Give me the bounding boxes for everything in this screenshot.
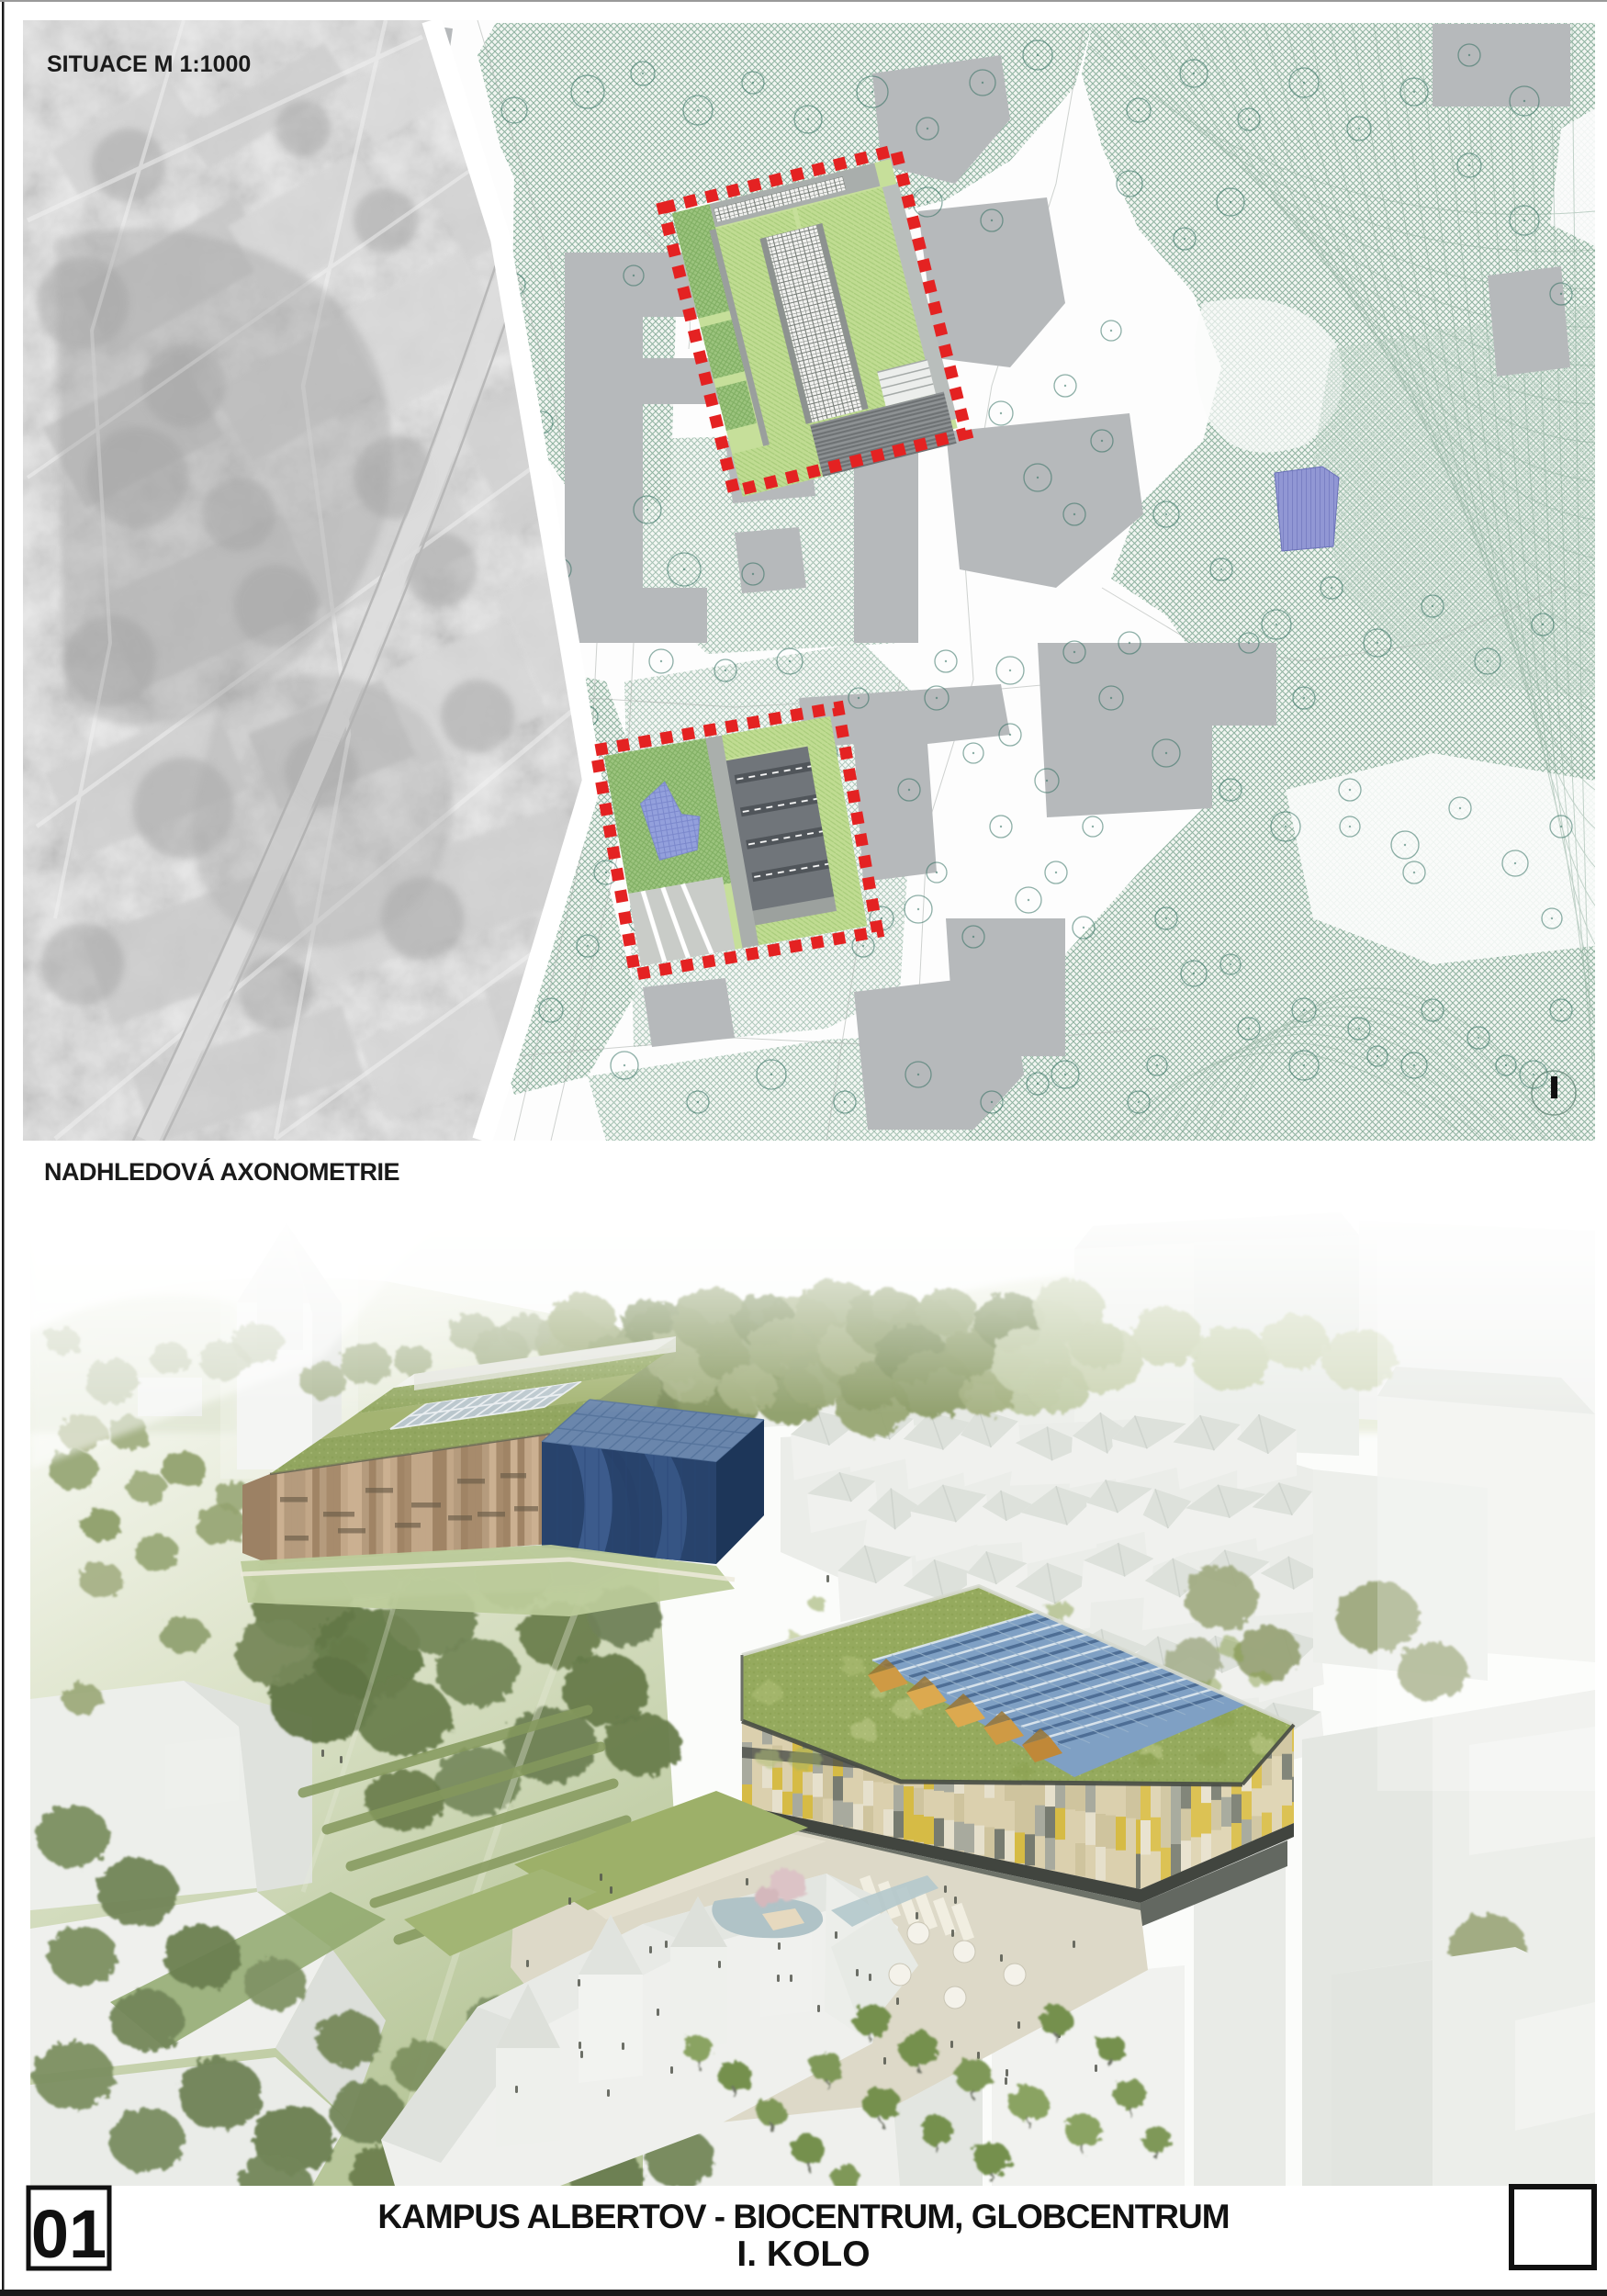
svg-text:NADHLEDOVÁ AXONOMETRIE: NADHLEDOVÁ AXONOMETRIE — [44, 1157, 399, 1186]
svg-text:SITUACE M 1:1000: SITUACE M 1:1000 — [47, 51, 251, 77]
svg-text:01: 01 — [31, 2196, 107, 2272]
svg-text:KAMPUS ALBERTOV - BIOCENTRUM,: KAMPUS ALBERTOV - BIOCENTRUM, GLOBCENTRU… — [377, 2198, 1229, 2235]
svg-text:I. KOLO: I. KOLO — [736, 2234, 870, 2274]
